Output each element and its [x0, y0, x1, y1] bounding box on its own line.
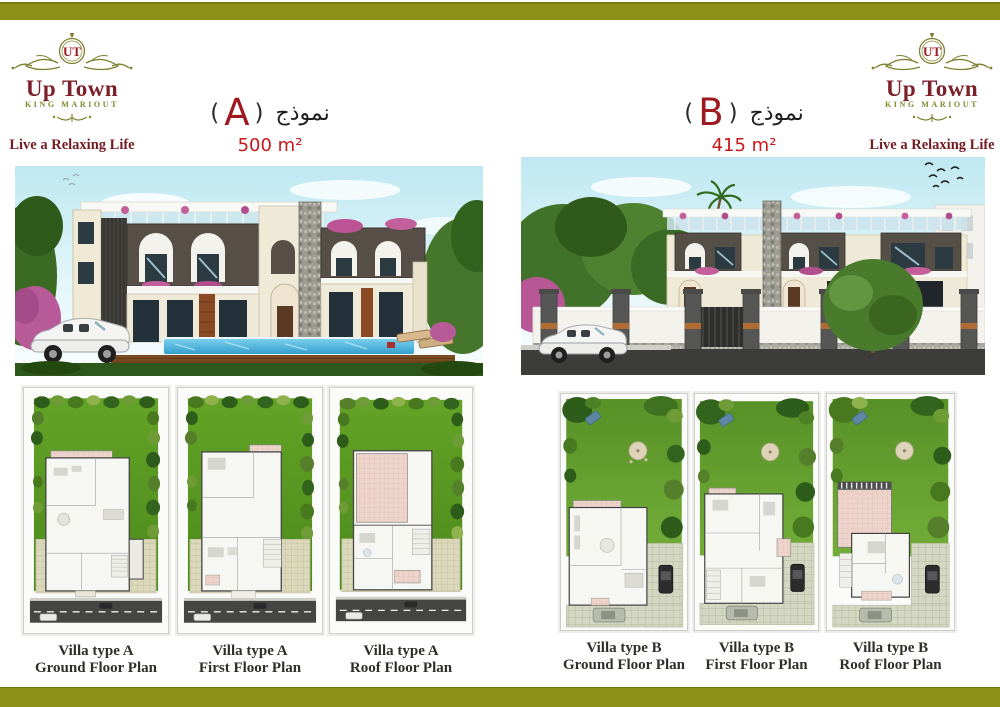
plan-caption: Villa type BRoof Floor Plan: [839, 640, 941, 674]
model-b-letter: B: [698, 95, 723, 131]
car: [253, 603, 266, 609]
floor-plan-thumbnail: [23, 387, 169, 634]
swimming-pool: [163, 338, 415, 355]
brochure-page: UT Up Town KING MARIOUT Live a Relaxing …: [0, 0, 1000, 707]
floor-plan-thumbnail: [826, 393, 955, 631]
brand-tagline: Live a Relaxing Life: [2, 137, 142, 154]
logo-monogram: UT: [63, 44, 81, 59]
logo-crest-icon: UT: [2, 33, 142, 77]
top-accent-bar: [0, 2, 1000, 20]
brand-tagline: Live a Relaxing Life: [862, 137, 1000, 154]
house-outline: [202, 445, 281, 601]
plan-villa-b-roof: Villa type BRoof Floor Plan: [826, 393, 955, 674]
paren-open: (: [684, 100, 693, 126]
car: [593, 608, 625, 622]
plan-villa-a-first: Villa type AFirst Floor Plan: [177, 387, 323, 677]
logo-subtitle: KING MARIOUT: [2, 100, 142, 109]
model-a-letter: A: [224, 95, 249, 131]
model-b-area: 415 m²: [634, 135, 854, 156]
car: [925, 565, 939, 593]
logo-flourish-icon: [862, 112, 1000, 124]
villa-a-render-image: [15, 166, 483, 376]
model-b-title: ( B ) نموذج: [634, 94, 854, 132]
model-b-arabic-word: نموذج: [750, 101, 804, 126]
model-a-arabic-word: نموذج: [276, 101, 330, 126]
plan-villa-a-roof: Villa type ARoof Floor Plan: [329, 387, 473, 677]
plan-villa-b-ground: Villa type BGround Floor Plan: [560, 393, 688, 674]
car: [726, 606, 757, 620]
paren-close: ): [729, 100, 738, 126]
car: [99, 603, 112, 609]
plan-caption: Villa type AGround Floor Plan: [35, 643, 157, 677]
model-a-header: ( A ) نموذج 500 m²: [160, 94, 380, 156]
plan-caption: Villa type BFirst Floor Plan: [705, 640, 807, 674]
bottom-accent-bar: [0, 687, 1000, 707]
logo-monogram: UT: [923, 44, 941, 59]
floor-plan-thumbnail: [560, 393, 688, 631]
house-outline: [354, 451, 432, 590]
model-b-header: ( B ) نموذج 415 m²: [634, 94, 854, 156]
roof-terrace: [356, 454, 407, 523]
house-outline: [705, 488, 791, 603]
plan-caption: Villa type BGround Floor Plan: [563, 640, 685, 674]
plan-caption: Villa type AFirst Floor Plan: [199, 643, 301, 677]
logo-title: Up Town: [2, 77, 142, 100]
plan-villa-a-ground: Villa type AGround Floor Plan: [23, 387, 169, 677]
plan-villa-b-first: Villa type BFirst Floor Plan: [694, 393, 819, 674]
villa-b-townhouses: [663, 201, 971, 315]
house-outline: [569, 501, 647, 606]
plan-caption: Villa type ARoof Floor Plan: [350, 643, 452, 677]
car: [346, 612, 363, 619]
model-a-area: 500 m²: [160, 135, 380, 156]
model-a-title: ( A ) نموذج: [160, 94, 380, 132]
logo-flourish-icon: [2, 112, 142, 124]
car: [659, 565, 673, 593]
logo-subtitle: KING MARIOUT: [862, 100, 1000, 109]
house-outline: [46, 451, 143, 597]
car: [194, 614, 211, 621]
logo-title: Up Town: [862, 77, 1000, 100]
villa-b-render-image: [521, 157, 985, 375]
floor-plan-thumbnail: [694, 393, 819, 631]
floor-plan-thumbnail: [329, 387, 473, 634]
car: [40, 614, 57, 621]
floor-plan-thumbnail: [177, 387, 323, 634]
logo-crest-icon: UT: [862, 33, 1000, 77]
brand-logo-left: UT Up Town KING MARIOUT Live a Relaxing …: [2, 33, 142, 154]
car: [791, 564, 805, 591]
car: [860, 608, 892, 622]
paren-open: (: [210, 100, 219, 126]
car: [404, 602, 417, 608]
paren-close: ): [255, 100, 264, 126]
brand-logo-right: UT Up Town KING MARIOUT Live a Relaxing …: [862, 33, 1000, 154]
